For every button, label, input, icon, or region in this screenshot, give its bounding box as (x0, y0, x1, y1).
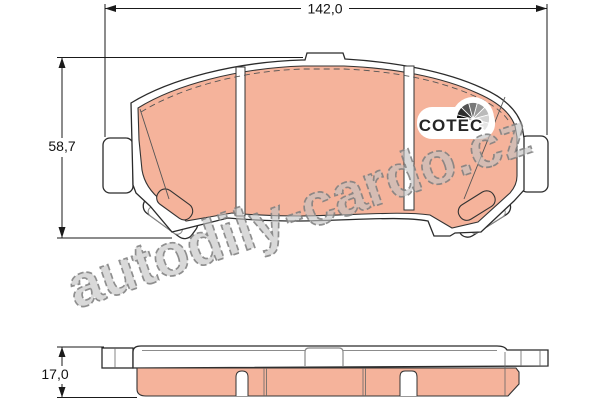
arrow-down-icon (59, 387, 66, 398)
side-right-slot (400, 371, 417, 396)
arrow-left-icon (105, 5, 116, 12)
height-dimension-label: 58,7 (48, 138, 75, 154)
arrow-up-icon (59, 58, 66, 69)
left-ear-tab (103, 138, 133, 193)
width-dimension-label: 142,0 (307, 1, 342, 17)
arrow-down-icon (59, 227, 66, 238)
arrow-up-icon (59, 347, 66, 357)
brake-pad-technical-drawing: 142,0 58,7 (0, 0, 600, 400)
arrow-right-icon (536, 5, 547, 12)
side-left-tab (102, 348, 133, 368)
drawing-canvas: 142,0 58,7 (0, 0, 600, 400)
side-top-tab (305, 348, 343, 366)
side-left-slot (236, 371, 248, 396)
side-friction (137, 368, 519, 396)
thickness-dimension-label: 17,0 (41, 366, 68, 382)
side-view-pad (102, 346, 548, 396)
